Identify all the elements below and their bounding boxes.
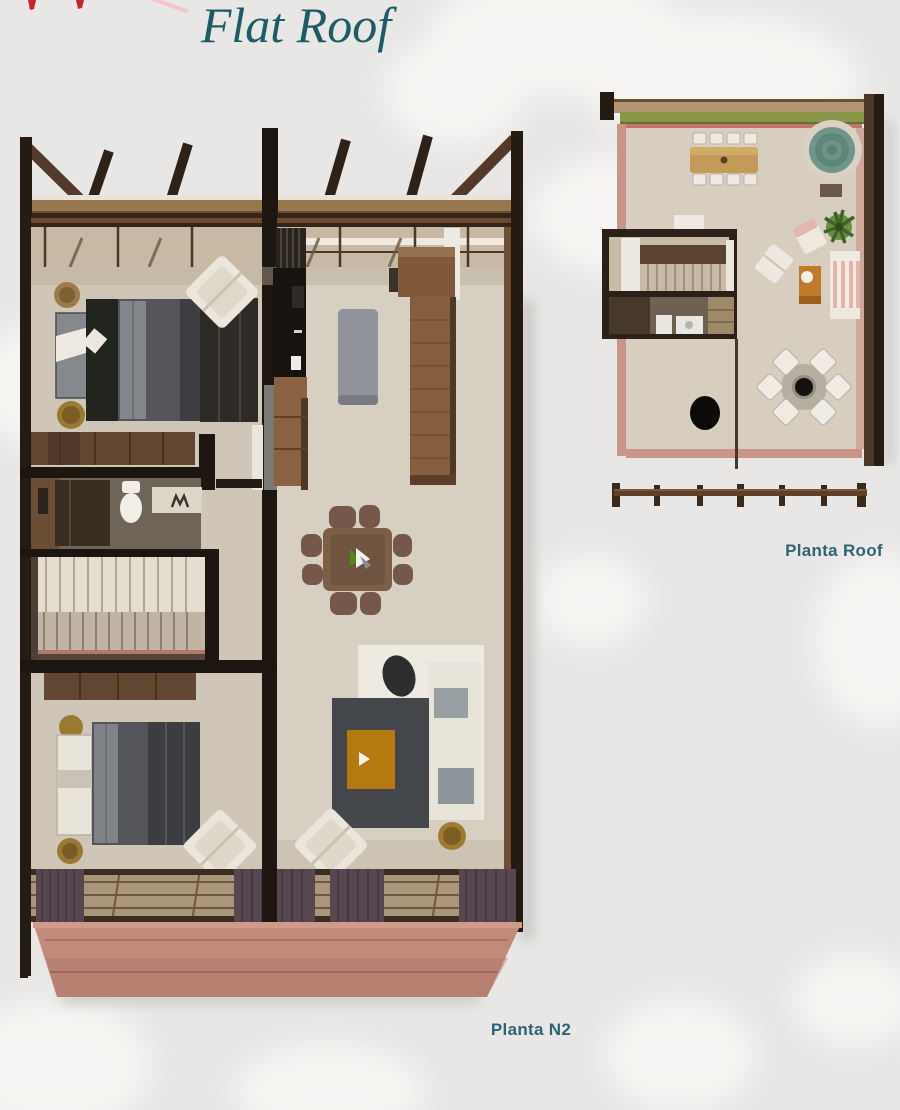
svg-text:Planta N2: Planta N2 bbox=[491, 1020, 571, 1039]
svg-text:Planta Roof: Planta Roof bbox=[785, 541, 883, 560]
svg-text:Flat Roof: Flat Roof bbox=[200, 0, 397, 53]
